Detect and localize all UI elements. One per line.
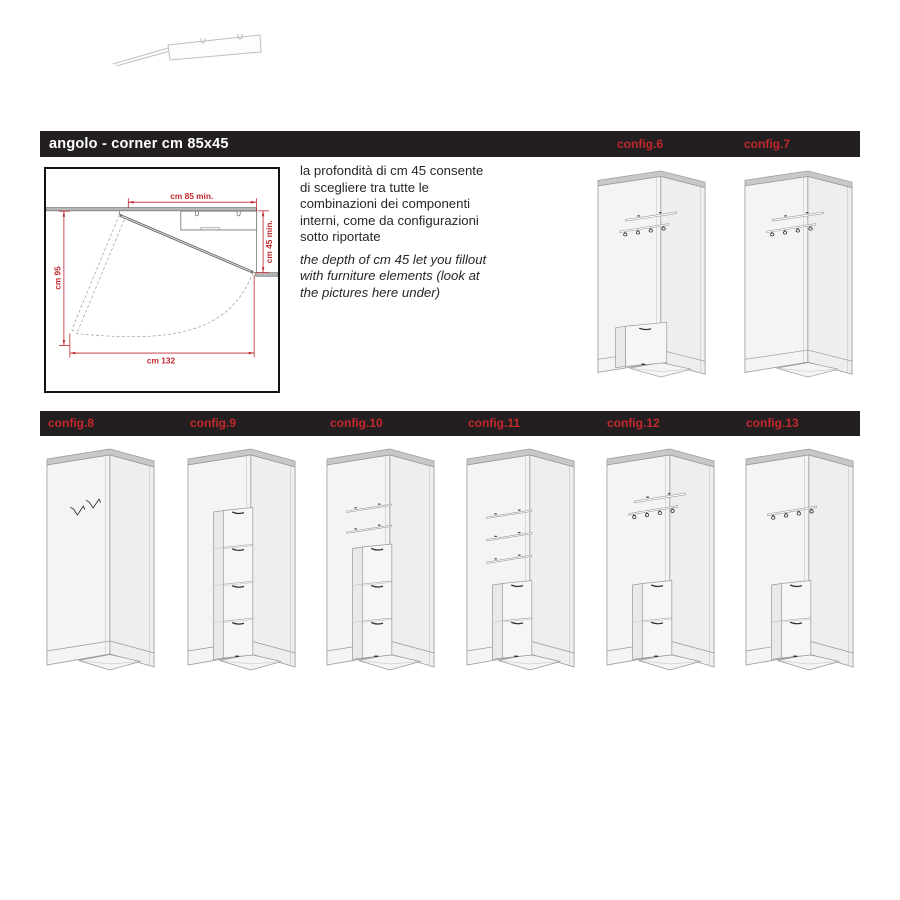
dim-right-label: cm 45 min.	[264, 220, 274, 263]
pivot-hinge	[120, 214, 122, 216]
configs-header-bar: config.8 config.9 config.10 config.11 co…	[40, 411, 860, 436]
config-12-label: config.12	[607, 411, 660, 436]
config-7-label: config.7	[744, 131, 790, 157]
intro-english: the depth of cm 45 let you fillout with …	[300, 252, 496, 302]
config-11-drawing	[465, 448, 579, 686]
section-title: angolo - corner cm 85x45	[49, 131, 229, 157]
dim-left-label: cm 95	[52, 266, 62, 290]
top-wall	[46, 208, 257, 211]
config-11-label: config.11	[468, 411, 520, 436]
plan-drawing-svg: cm 85 min. cm 45 min. cm 95 cm 132	[46, 169, 278, 391]
intro-italian: la profondità di cm 45 consente di scegl…	[300, 163, 496, 246]
config-6-drawing	[596, 170, 710, 392]
dim-bottom-label: cm 132	[147, 356, 176, 366]
config-8-drawing	[45, 448, 159, 686]
config-10-label: config.10	[330, 411, 383, 436]
cabinet-plan	[181, 211, 257, 230]
intro-text: la profondità di cm 45 consente di scegl…	[300, 163, 496, 301]
cropped-drawing-fragment	[110, 24, 272, 66]
section-header-bar: angolo - corner cm 85x45 config.6 config…	[40, 131, 860, 157]
config-12-drawing	[605, 448, 719, 686]
corner-plan-drawing: cm 85 min. cm 45 min. cm 95 cm 132	[44, 167, 280, 393]
config-10-drawing	[325, 448, 439, 686]
dim-top-label: cm 85 min.	[170, 191, 213, 201]
right-wall	[256, 273, 278, 277]
config-13-drawing	[744, 448, 858, 686]
config-7-drawing	[743, 170, 857, 392]
catalog-page: angolo - corner cm 85x45 config.6 config…	[0, 0, 900, 900]
config-6-label: config.6	[617, 131, 663, 157]
config-9-drawing	[186, 448, 300, 686]
config-8-label: config.8	[48, 411, 94, 436]
config-9-label: config.9	[190, 411, 236, 436]
config-13-label: config.13	[746, 411, 799, 436]
